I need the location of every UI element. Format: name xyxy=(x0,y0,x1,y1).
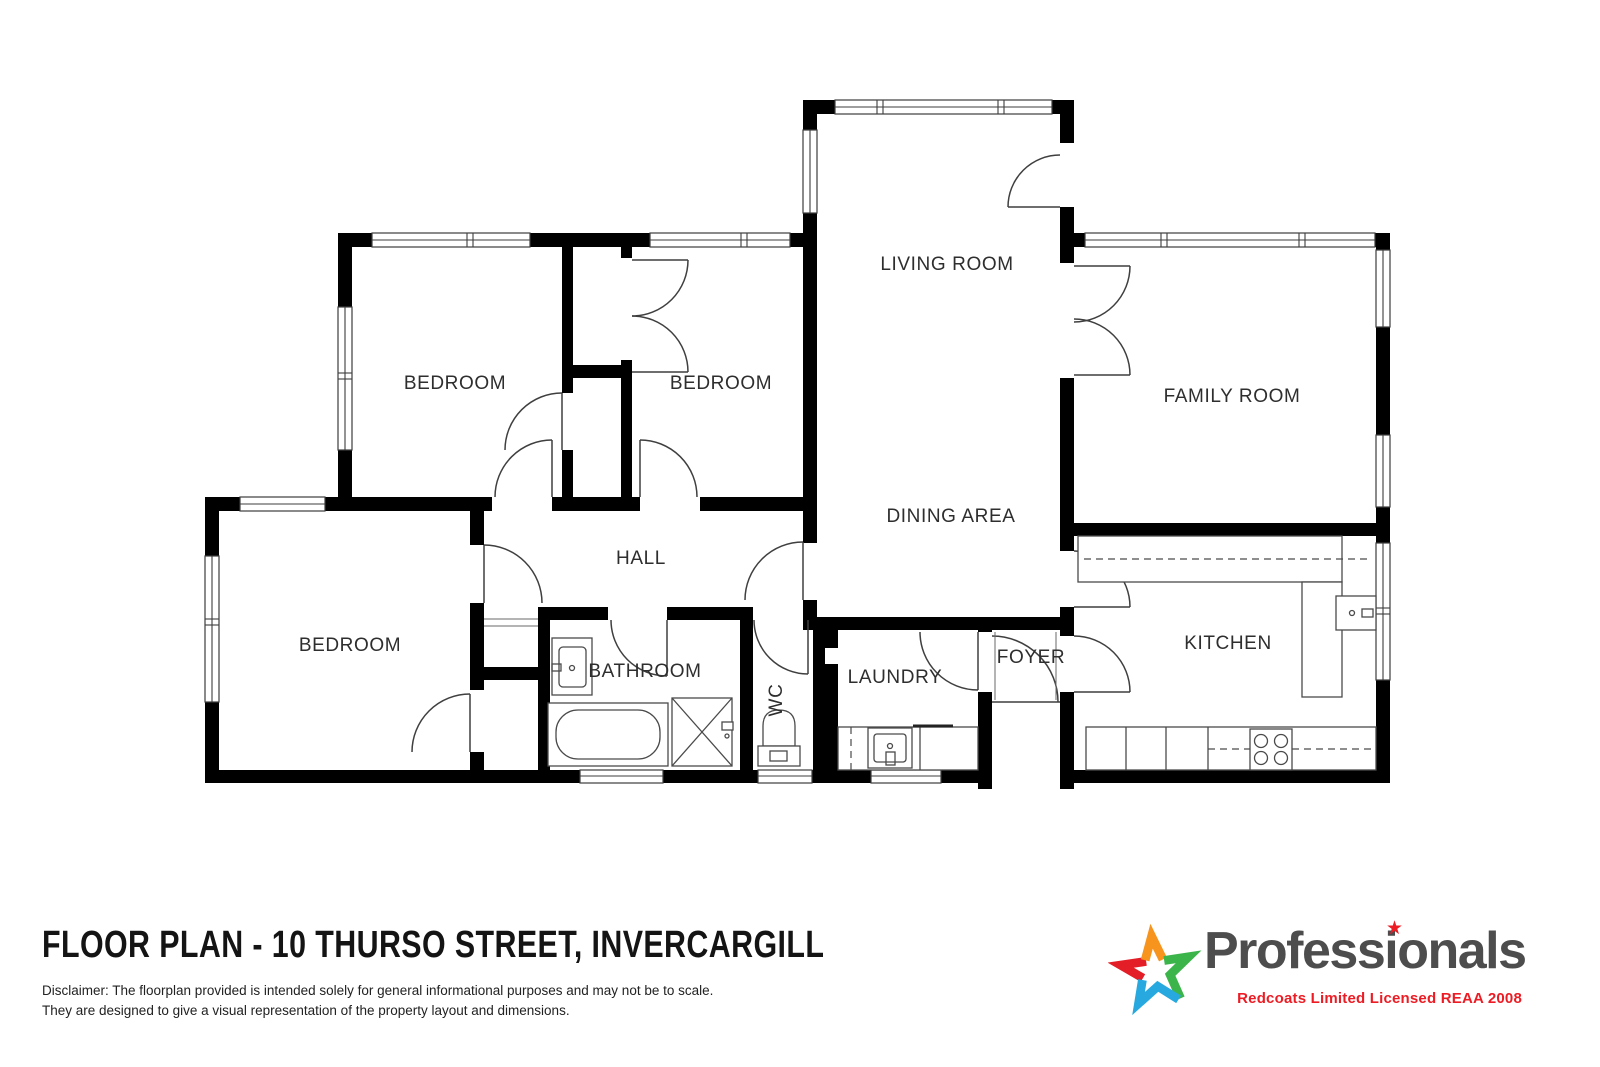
bathtub xyxy=(548,703,668,766)
disclaimer: Disclaimer: The floorplan provided is in… xyxy=(42,981,862,1020)
title-block: FLOOR PLAN - 10 THURSO STREET, INVERCARG… xyxy=(42,924,862,1020)
star-dot-icon: ★ xyxy=(1386,919,1403,938)
professionals-logo: Professionals ★ Redcoats Limited License… xyxy=(1108,918,1528,1028)
room-label-hall: HALL xyxy=(616,548,666,569)
laundry-sink xyxy=(868,728,912,768)
vanity-sink xyxy=(552,638,592,695)
room-label-bedroom-3: BEDROOM xyxy=(299,635,401,656)
room-label-bathroom: BATHROOM xyxy=(588,661,701,682)
room-labels: LIVING ROOM DINING AREA FAMILY ROOM KITC… xyxy=(299,254,1301,716)
wall-segments xyxy=(205,100,1390,789)
floor-plan-drawing: LIVING ROOM DINING AREA FAMILY ROOM KITC… xyxy=(0,0,1600,1067)
room-label-foyer: FOYER xyxy=(997,647,1065,668)
room-label-family-room: FAMILY ROOM xyxy=(1164,386,1301,407)
room-label-wc: WC xyxy=(766,684,787,717)
room-label-living-room: LIVING ROOM xyxy=(880,254,1013,275)
kitchen-sink xyxy=(1336,596,1376,630)
room-label-kitchen: KITCHEN xyxy=(1184,633,1272,654)
room-label-laundry: LAUNDRY xyxy=(848,667,943,688)
room-label-dining-area: DINING AREA xyxy=(886,506,1015,527)
toilet xyxy=(758,710,800,766)
floor-plan-page: LIVING ROOM DINING AREA FAMILY ROOM KITC… xyxy=(0,0,1600,1067)
brand-wordmark: Professionals xyxy=(1204,924,1526,979)
disclaimer-line-1: Disclaimer: The floorplan provided is in… xyxy=(42,981,862,1001)
windows xyxy=(205,100,1390,783)
disclaimer-line-2: They are designed to give a visual repre… xyxy=(42,1001,862,1021)
star-icon xyxy=(1108,922,1204,1022)
brand-tagline: Redcoats Limited Licensed REAA 2008 xyxy=(1204,990,1522,1007)
shower xyxy=(672,698,733,766)
room-label-bedroom-1: BEDROOM xyxy=(404,373,506,394)
page-title: FLOOR PLAN - 10 THURSO STREET, INVERCARG… xyxy=(42,924,698,967)
stove-cooktop xyxy=(1250,729,1292,770)
room-label-bedroom-2: BEDROOM xyxy=(670,373,772,394)
